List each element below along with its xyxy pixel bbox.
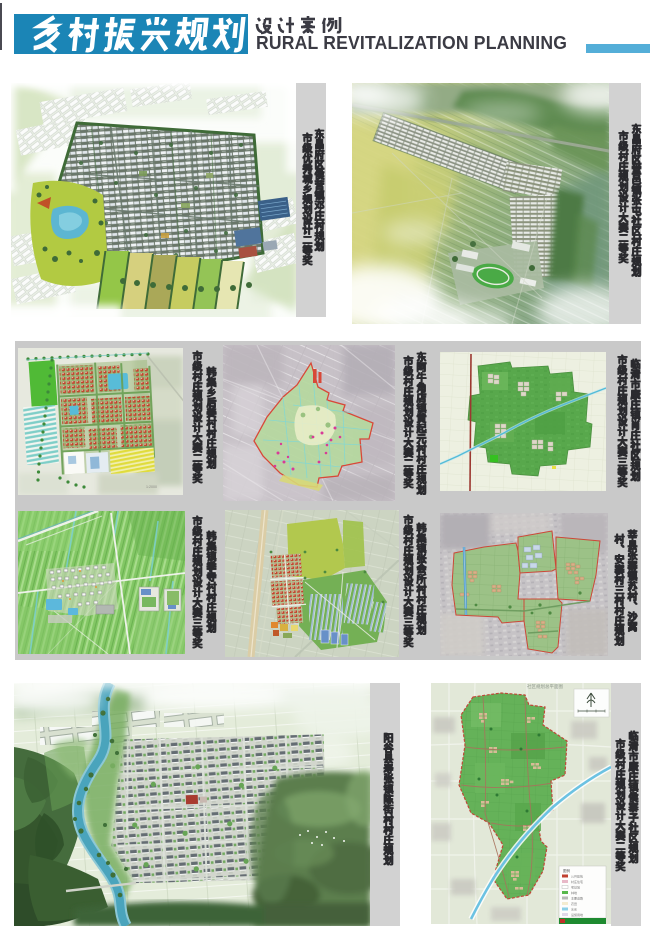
svg-text:设施用地: 设施用地 bbox=[571, 912, 583, 917]
svg-text:公共建筑: 公共建筑 bbox=[571, 874, 583, 879]
svg-text:1:2000: 1:2000 bbox=[146, 485, 157, 489]
svg-text:图例: 图例 bbox=[563, 868, 571, 873]
svg-text:水系: 水系 bbox=[571, 907, 577, 912]
svg-text:社区规划总平面图: 社区规划总平面图 bbox=[527, 683, 563, 690]
svg-text:村庄住宅: 村庄住宅 bbox=[571, 879, 583, 884]
svg-text:林地: 林地 bbox=[571, 890, 577, 895]
svg-text:主要道路: 主要道路 bbox=[571, 896, 583, 901]
svg-text:宅基地: 宅基地 bbox=[571, 885, 580, 890]
svg-text:农田: 农田 bbox=[571, 901, 577, 906]
